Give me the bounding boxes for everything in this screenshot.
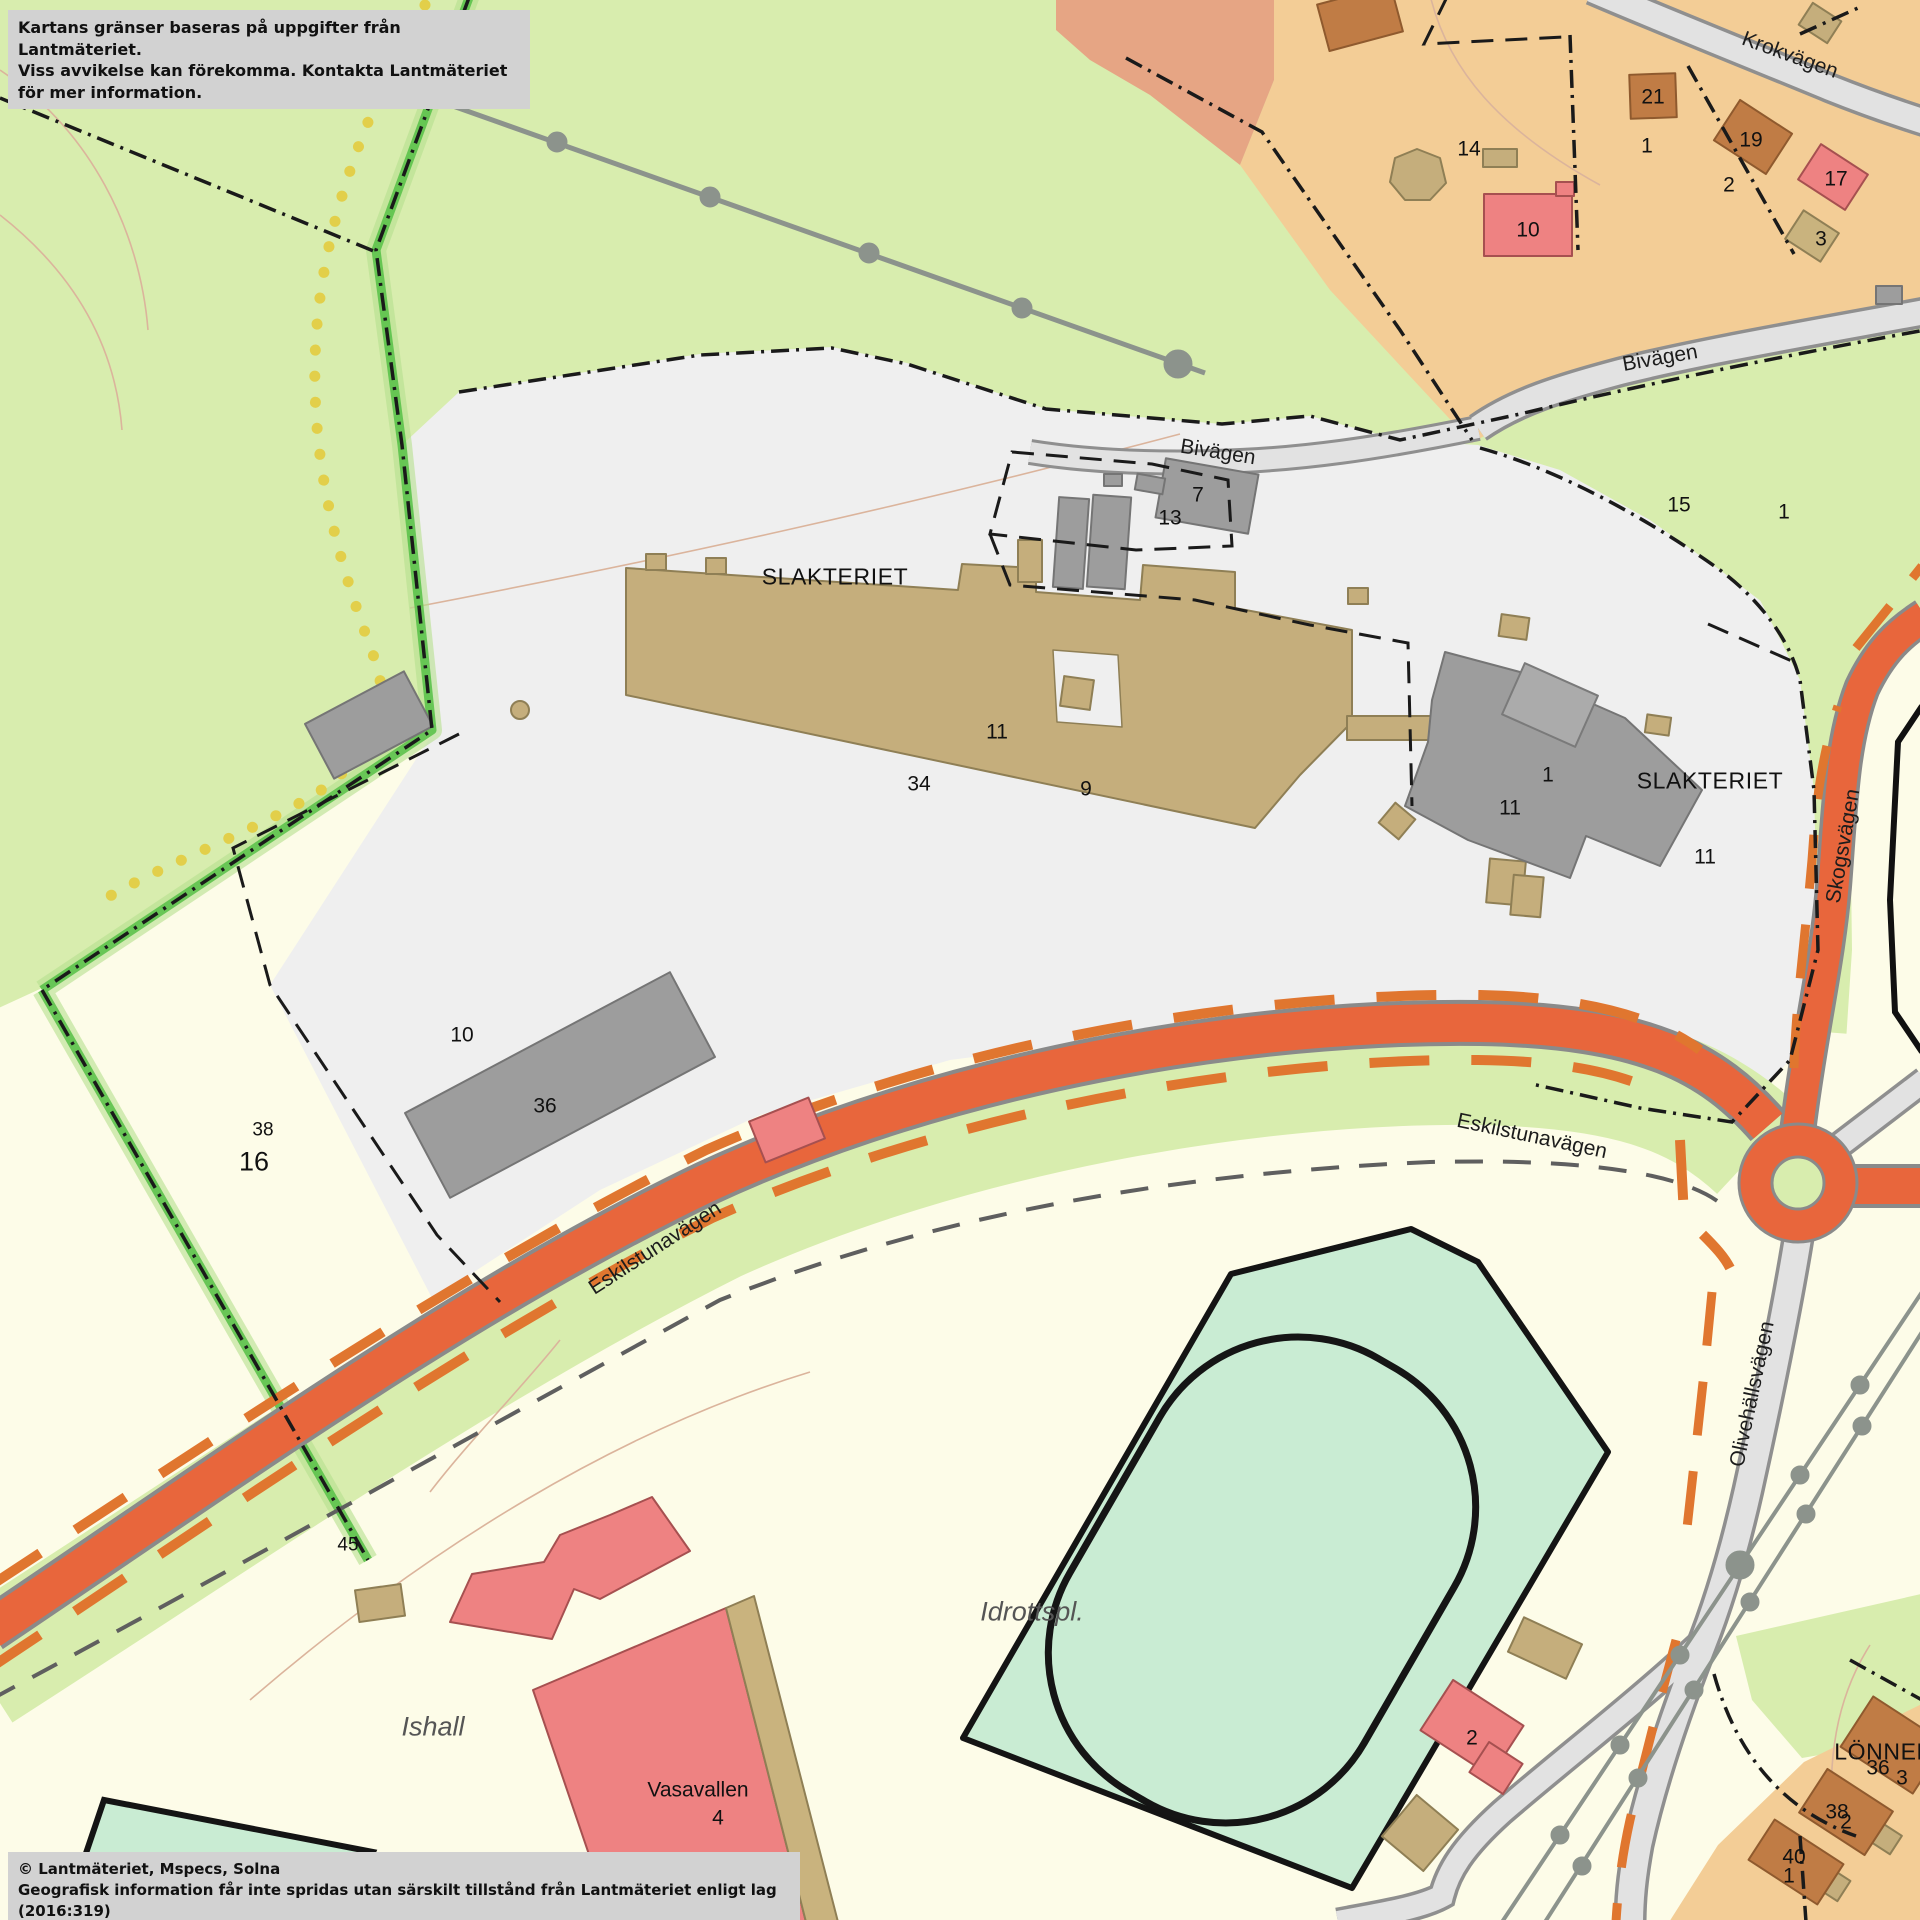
disclaimer-line2: Viss avvikelse kan förekomma. Kontakta L… (18, 60, 520, 103)
map-label: 38 (252, 1121, 273, 1140)
map-label: 10 (450, 1025, 473, 1046)
map-label: 21 (1641, 87, 1664, 108)
map-label: 1 (1542, 765, 1554, 786)
map-label: 2 (1840, 1812, 1852, 1833)
map-layers (0, 0, 1920, 1920)
map-label: Vasavallen (647, 1780, 748, 1801)
map-canvas[interactable]: KrokvägenBivägenBivägenSLAKTERIETSLAKTER… (0, 0, 1920, 1920)
map-label: SLAKTERIET (1637, 770, 1784, 793)
map-label: 36 (1866, 1758, 1889, 1779)
map-label: 1 (1778, 502, 1790, 523)
map-label: 15 (1667, 495, 1690, 516)
map-label: Ishall (401, 1714, 464, 1741)
map-label: 4 (712, 1808, 724, 1829)
roundabout (1739, 1124, 1857, 1242)
map-label: 1 (1783, 1866, 1795, 1887)
map-label: 11 (1499, 798, 1521, 819)
map-label: 45 (337, 1536, 358, 1555)
map-label: 1 (1641, 136, 1653, 157)
disclaimer-box: Kartans gränser baseras på uppgifter frå… (8, 10, 530, 109)
map-label: 3 (1896, 1768, 1908, 1789)
attribution-line1: © Lantmäteriet, Mspecs, Solna (18, 1859, 790, 1880)
courtyard-shed (1060, 676, 1094, 710)
map-label: 34 (907, 774, 930, 795)
map-label: 10 (1516, 220, 1539, 241)
map-label: 7 (1192, 485, 1204, 506)
map-label: 3 (1815, 229, 1827, 250)
map-label: 2 (1723, 175, 1735, 196)
map-label: 2 (1466, 1728, 1478, 1749)
map-label: Idrottspl. (980, 1599, 1084, 1626)
map-label: 17 (1824, 169, 1847, 190)
attribution-box: © Lantmäteriet, Mspecs, Solna Geografisk… (8, 1852, 800, 1920)
map-label: 16 (239, 1149, 269, 1176)
building-heptagon-shed (1390, 149, 1446, 200)
map-label: 36 (533, 1096, 556, 1117)
map-label: 11 (986, 722, 1008, 743)
map-label: 9 (1080, 779, 1092, 800)
map-label: 11 (1694, 847, 1716, 868)
map-label: 19 (1739, 130, 1762, 151)
map-label: 14 (1457, 139, 1480, 160)
map-label: 13 (1158, 508, 1181, 529)
disclaimer-line1: Kartans gränser baseras på uppgifter frå… (18, 17, 520, 60)
attribution-line2: Geografisk information får inte spridas … (18, 1880, 790, 1920)
map-label: SLAKTERIET (762, 566, 909, 589)
